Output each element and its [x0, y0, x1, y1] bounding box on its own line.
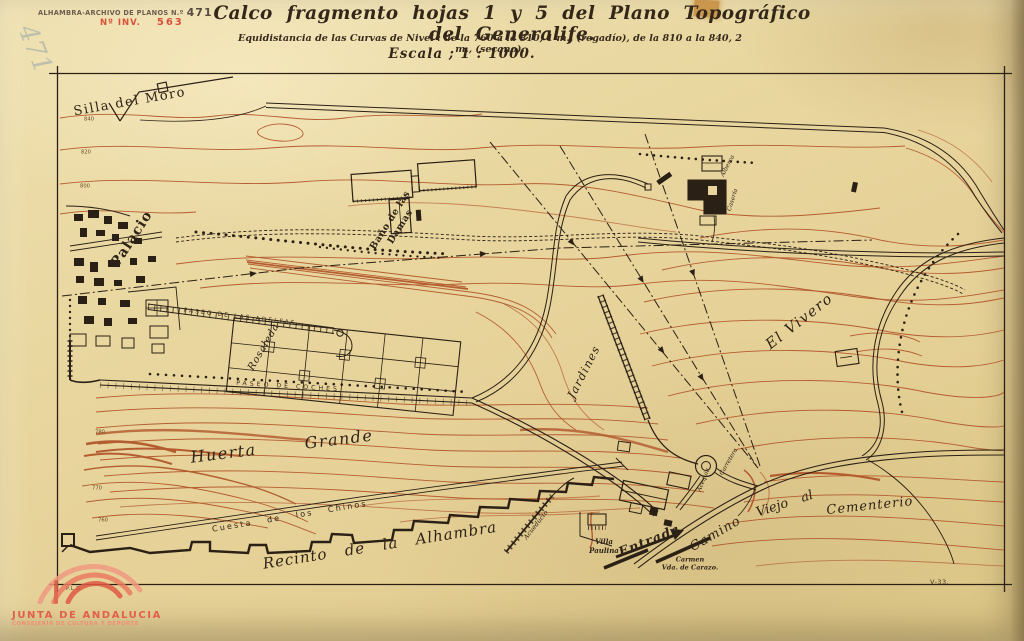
caseria-buildings [645, 156, 858, 225]
contour-lines [60, 114, 1004, 451]
plate-mark: V-33. [930, 578, 949, 586]
junta-andalucia-logo: JUNTA DE ANDALUCIA CONSEJERÍA DE CULTURA… [12, 560, 192, 627]
label-carmen: Carmen [662, 556, 718, 564]
logo-arcs-icon [12, 560, 172, 604]
contour-number: 800 [80, 184, 90, 191]
logo-line2: CONSEJERÍA DE CULTURA Y DEPORTE [12, 621, 192, 627]
palacio-buildings [66, 206, 180, 382]
landmark-box [835, 349, 859, 367]
label-vda-carazo: Vda. de Carazo. [662, 564, 718, 572]
label-paulina: Paulina [589, 546, 619, 555]
label-villa-paulina: Villa Paulina [589, 537, 619, 555]
contour-number: 780 [95, 430, 105, 437]
dotted-tree-rows [70, 154, 958, 412]
contour-number: 760 [98, 518, 108, 525]
contour-number: 840 [84, 117, 94, 124]
survey-arrows [250, 238, 707, 382]
contour-number: 820 [81, 150, 91, 157]
label-carmen-carazo: Carmen Vda. de Carazo. [662, 556, 718, 573]
logo-line1: JUNTA DE ANDALUCIA [12, 610, 192, 621]
terrace-contours [82, 394, 1004, 566]
label-villa: Villa [589, 537, 619, 546]
photo-edge-shadow [1010, 0, 1024, 641]
contour-number: 770 [92, 486, 102, 493]
map-sheet: ALHAMBRA-ARCHIVO DE PLANOS N.º471 Nº INV… [0, 0, 1024, 641]
